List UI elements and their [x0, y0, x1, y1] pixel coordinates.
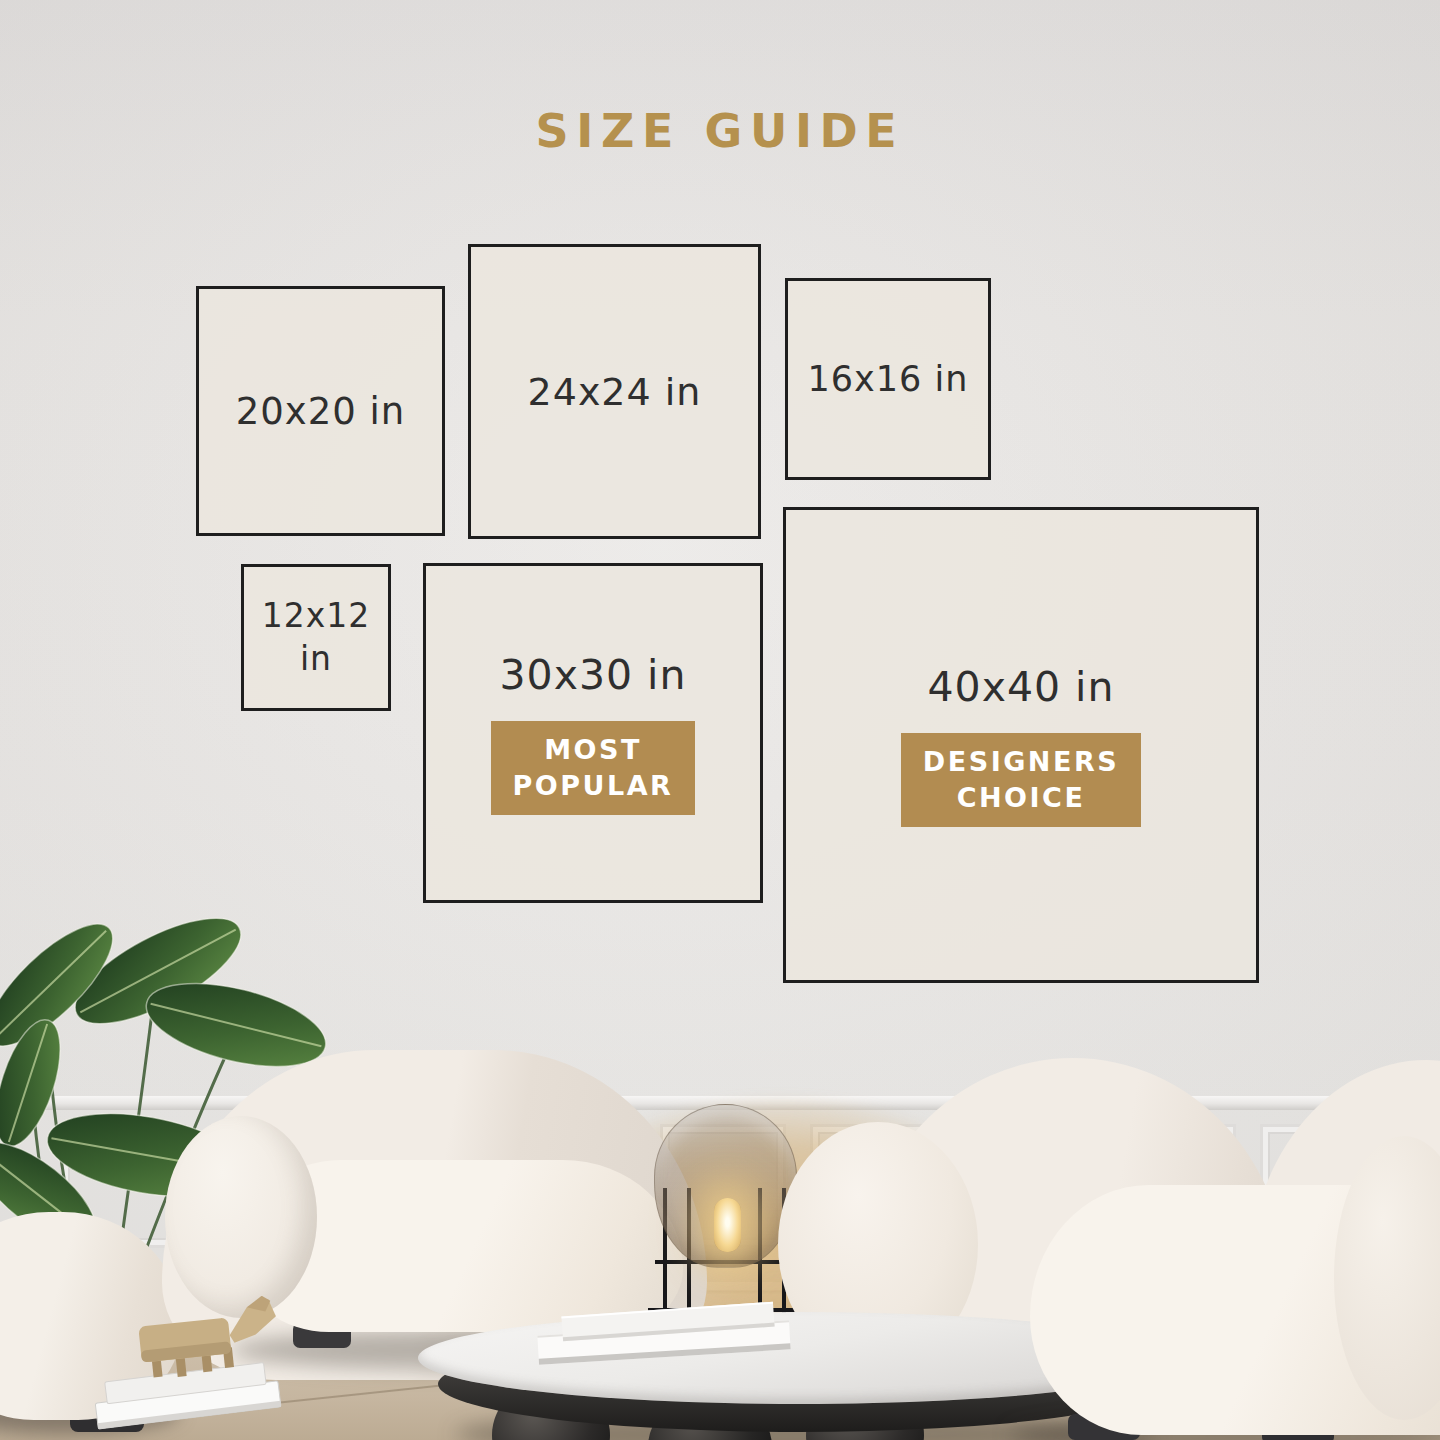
- size-box-30x30: 30x30 in MOST POPULAR: [423, 563, 763, 903]
- size-box-20x20: 20x20 in: [196, 286, 445, 536]
- badge-line: MOST: [513, 732, 674, 768]
- size-guide-image: SIZE GUIDE 20x20 in 24x24 in 16x16 in 12…: [0, 0, 1440, 1440]
- size-box-12x12: 12x12 in: [241, 564, 391, 711]
- size-label-20x20: 20x20 in: [236, 390, 406, 433]
- floor-books-and-toy: [80, 1296, 310, 1440]
- designers-choice-badge: DESIGNERS CHOICE: [901, 733, 1141, 828]
- size-label-16x16: 16x16 in: [808, 359, 969, 399]
- size-label-12x12: 12x12 in: [262, 595, 371, 681]
- badge-line: DESIGNERS: [923, 744, 1119, 780]
- lamp-bulb: [714, 1198, 741, 1252]
- size-label-30x30: 30x30 in: [499, 651, 686, 699]
- badge-line: POPULAR: [513, 768, 674, 804]
- size-label-24x24: 24x24 in: [528, 370, 702, 414]
- size-box-24x24: 24x24 in: [468, 244, 761, 539]
- size-label-40x40: 40x40 in: [927, 663, 1114, 711]
- badge-line: CHOICE: [923, 780, 1119, 816]
- floor-books: [93, 1361, 281, 1429]
- size-box-40x40: 40x40 in DESIGNERS CHOICE: [783, 507, 1259, 983]
- left-armchair-arm: [165, 1116, 317, 1318]
- most-popular-badge: MOST POPULAR: [491, 721, 696, 816]
- size-box-16x16: 16x16 in: [785, 278, 991, 480]
- page-title: SIZE GUIDE: [0, 104, 1440, 158]
